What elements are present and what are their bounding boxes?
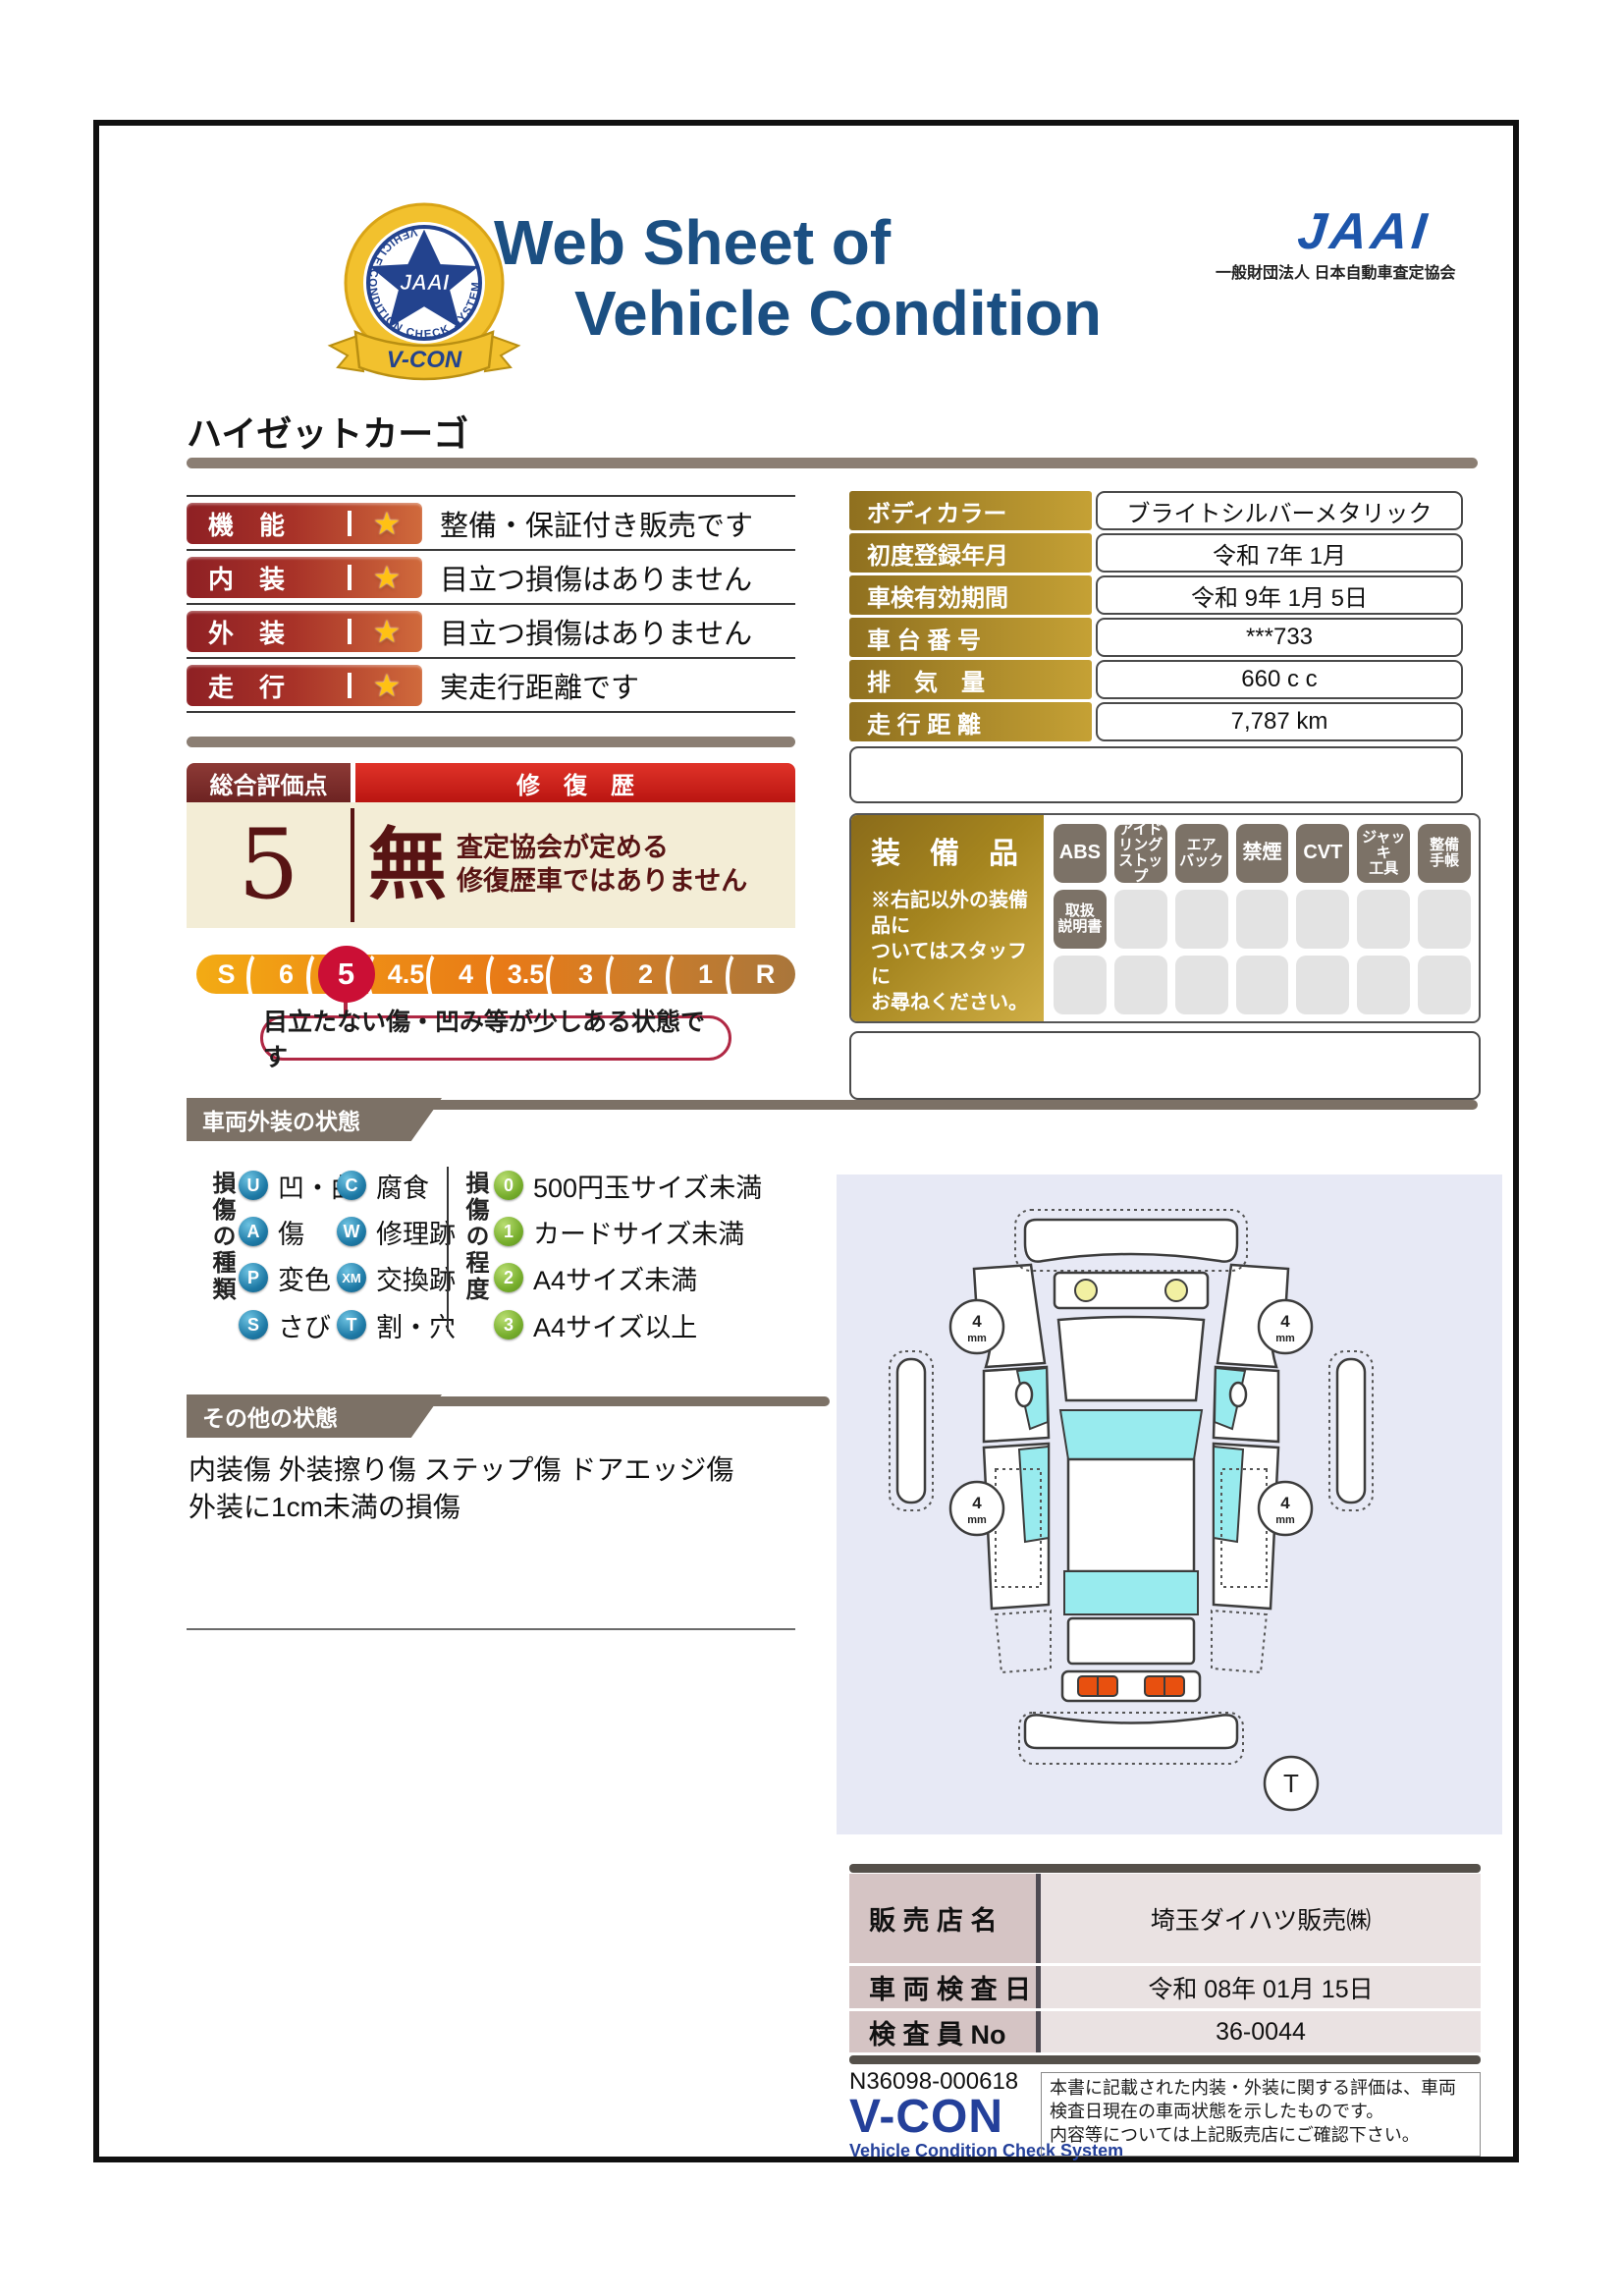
- rear-bumper: [1025, 1715, 1237, 1748]
- headlight-right: [1165, 1280, 1187, 1301]
- svg-text:4: 4: [1280, 1312, 1290, 1331]
- repair-note-line2: 修復歴車ではありません: [457, 866, 747, 896]
- star-icon: ★: [361, 613, 412, 650]
- equipment-panel: 装 備 品 ※右記以外の装備品に ついてはスタッフに お尋ねください。 ABS …: [849, 813, 1481, 1023]
- pill-separator: [348, 619, 352, 644]
- svg-text:mm: mm: [1275, 1333, 1295, 1344]
- info-label: 走 行 距 離: [849, 702, 1092, 741]
- info-value: 令和 7年 1月: [1096, 533, 1463, 573]
- rating-pill: 機 能 ★: [187, 503, 422, 544]
- equipment-badge-empty: [1357, 956, 1410, 1014]
- rating-divider: [187, 495, 795, 497]
- equipment-badge-empty: [1114, 890, 1167, 949]
- svg-text:4: 4: [972, 1312, 982, 1331]
- badge-star-text: JAAI: [400, 270, 450, 295]
- damage-type-A: A 傷: [239, 1215, 304, 1248]
- equipment-badge-empty: [1357, 890, 1410, 949]
- damage-grade-1: 1 カードサイズ未満: [494, 1215, 744, 1248]
- damage-type-icon: A: [239, 1217, 268, 1246]
- info-row-displacement: 排 気 量 660 c c: [849, 660, 1463, 699]
- dealer-label: 車 両 検 査 日: [849, 1966, 1036, 2008]
- rating-description: 目立つ損傷はありません: [440, 611, 752, 652]
- equipment-badge-empty: [1236, 890, 1289, 949]
- scale-seg-5: 5: [316, 955, 376, 994]
- dealer-label: 販 売 店 名: [849, 1874, 1036, 1963]
- windshield: [1058, 1317, 1204, 1400]
- damage-type-label: 修理跡: [376, 1213, 456, 1251]
- star-icon: ★: [361, 505, 412, 542]
- damage-grade-label: カードサイズ未満: [533, 1213, 744, 1251]
- dealer-row-inspector-no: 検 査 員 No 36-0044: [849, 2011, 1481, 2052]
- rating-pill: 内 装 ★: [187, 557, 422, 598]
- score-scale: S 6 5 4.5 4 3.5 3 2 1 R: [196, 955, 795, 994]
- rating-label: 内 装: [208, 560, 338, 596]
- damage-grade-icon: 1: [494, 1217, 523, 1246]
- rating-label: 外 装: [208, 614, 338, 650]
- info-label: 排 気 量: [849, 660, 1092, 699]
- damage-grade-label: A4サイズ以上: [533, 1306, 697, 1344]
- svg-text:mm: mm: [1275, 1514, 1295, 1526]
- car-top-view: .wh{fill:#ffffff;stroke:#3c3c3c;stroke-w…: [837, 1175, 1502, 1834]
- damage-grade-label: 500円玉サイズ未満: [533, 1167, 762, 1205]
- rating-row-interior: 内 装 ★ 目立つ損傷はありません: [187, 557, 795, 598]
- damage-type-C: C 腐食: [337, 1169, 429, 1202]
- info-label: 車 台 番 号: [849, 618, 1092, 657]
- rating-description: 目立つ損傷はありません: [440, 557, 752, 598]
- jaai-logo: JAAI: [1295, 202, 1434, 261]
- damage-grade-icon: 2: [494, 1263, 523, 1292]
- info-label: ボディカラー: [849, 491, 1092, 530]
- rating-divider: [187, 603, 795, 605]
- equipment-badge-maintenance-book: 整備 手帳: [1418, 824, 1471, 883]
- equipment-grid: ABS アイド リング ストップ エア バック 禁煙 CVT ジャッキ 工具 整…: [1044, 815, 1479, 1021]
- dealer-value: 36-0044: [1041, 2011, 1481, 2052]
- equipment-badge-airbag: エア バック: [1175, 824, 1228, 883]
- equipment-badge-cvt: CVT: [1296, 824, 1349, 883]
- rating-description: 実走行距離です: [440, 665, 639, 706]
- damage-type-W: W 修理跡: [337, 1215, 456, 1248]
- info-value: 660 c c: [1096, 660, 1463, 699]
- damage-type-T: T 割・穴: [337, 1308, 456, 1341]
- rating-label: 走 行: [208, 668, 338, 704]
- dealer-row-inspection-date: 車 両 検 査 日 令和 08年 01月 15日: [849, 1966, 1481, 2008]
- equipment-badge-owners-manual: 取扱 説明書: [1054, 890, 1107, 949]
- damage-types-title: 損傷の種類: [204, 1171, 239, 1338]
- page-title-line1: Web Sheet of: [494, 208, 1102, 279]
- equipment-badge-jack-tools: ジャッキ 工具: [1357, 824, 1410, 883]
- damage-grade-0: 0 500円玉サイズ未満: [494, 1169, 762, 1202]
- rating-divider: [187, 549, 795, 551]
- rating-description: 整備・保証付き販売です: [440, 503, 753, 544]
- info-row-mileage: 走 行 距 離 7,787 km: [849, 702, 1463, 741]
- repair-history-value: 無: [368, 826, 447, 904]
- equipment-note: ※右記以外の装備品に ついてはスタッフに お尋ねください。: [871, 888, 1044, 1015]
- damage-type-P: P 変色: [239, 1261, 331, 1294]
- equipment-badge-empty: [1114, 956, 1167, 1014]
- damage-type-icon: U: [239, 1171, 268, 1200]
- selected-score-marker: 5: [318, 946, 375, 1003]
- exterior-section-title: 車両外装の状態: [187, 1098, 442, 1141]
- page-title-line2: Vehicle Condition: [574, 279, 1102, 350]
- svg-text:4: 4: [1280, 1494, 1290, 1512]
- equipment-badge-empty: [1296, 956, 1349, 1014]
- score-body: 5 無 査定協会が定める 修復歴車ではありません: [187, 802, 795, 928]
- damage-type-icon: T: [337, 1310, 366, 1339]
- title-divider: [187, 458, 1478, 468]
- dealer-table-bottom-bar: [849, 2055, 1481, 2064]
- damage-type-icon: C: [337, 1171, 366, 1200]
- equipment-badge-idling-stop: アイド リング ストップ: [1114, 824, 1167, 883]
- repair-history-note: 査定協会が定める 修復歴車ではありません: [457, 832, 747, 899]
- damage-type-icon: P: [239, 1263, 268, 1292]
- damage-grade-label: A4サイズ未満: [533, 1259, 697, 1297]
- damage-type-label: 割・穴: [376, 1306, 456, 1344]
- dealer-label: 検 査 員 No: [849, 2011, 1036, 2052]
- equipment-title: 装 備 品: [871, 829, 1044, 872]
- damage-type-label: さび: [278, 1306, 331, 1344]
- dealer-value: 令和 08年 01月 15日: [1041, 1966, 1481, 2008]
- info-value: ブライトシルバーメタリック: [1096, 491, 1463, 530]
- legend-divider: [447, 1167, 449, 1332]
- score-header: 総合評価点 修 復 歴: [187, 763, 795, 802]
- repair-history: 無 査定協会が定める 修復歴車ではありません: [354, 802, 795, 928]
- rating-divider: [187, 657, 795, 659]
- equipment-badge-empty: [1054, 956, 1107, 1014]
- info-value: 7,787 km: [1096, 702, 1463, 741]
- badge-banner-text: V-CON: [387, 347, 462, 373]
- t-marker-label: T: [1283, 1769, 1299, 1798]
- svg-text:mm: mm: [967, 1514, 987, 1526]
- rating-divider: [187, 711, 795, 713]
- vcon-wordmark: V-CON: [849, 2090, 1003, 2144]
- dealer-value: 埼玉ダイハツ販売㈱: [1041, 1874, 1481, 1963]
- scale-seg-R: R: [735, 955, 795, 994]
- score-note-callout: 目立たない傷・凹み等が少しある状態です: [260, 1015, 731, 1061]
- dealer-table-top-bar: [849, 1864, 1481, 1873]
- pill-separator: [348, 565, 352, 590]
- star-icon: ★: [361, 667, 412, 704]
- equipment-gold-panel: 装 備 品 ※右記以外の装備品に ついてはスタッフに お尋ねください。: [851, 815, 1044, 1021]
- info-empty-box: [849, 746, 1463, 803]
- rating-label: 機 能: [208, 506, 338, 542]
- info-value: 令和 9年 1月 5日: [1096, 575, 1463, 615]
- damage-type-S: S さび: [239, 1308, 331, 1341]
- overall-score-value: 5: [187, 802, 351, 928]
- equipment-badge-empty: [1236, 956, 1289, 1014]
- info-label: 初度登録年月: [849, 533, 1092, 573]
- rating-row-exterior: 外 装 ★ 目立つ損傷はありません: [187, 611, 795, 652]
- rating-pill: 走 行 ★: [187, 665, 422, 706]
- other-section-title: その他の状態: [187, 1394, 442, 1438]
- roof-panel: [1068, 1459, 1194, 1571]
- damage-type-icon: W: [337, 1217, 366, 1246]
- info-row-body-color: ボディカラー ブライトシルバーメタリック: [849, 491, 1463, 530]
- rating-row-function: 機 能 ★ 整備・保証付き販売です: [187, 503, 795, 544]
- damage-type-label: 傷: [278, 1213, 304, 1251]
- damage-type-label: 腐食: [376, 1167, 429, 1205]
- svg-text:4: 4: [972, 1494, 982, 1512]
- vehicle-damage-diagram: .wh{fill:#ffffff;stroke:#3c3c3c;stroke-w…: [837, 1175, 1502, 1834]
- damage-grade-icon: 3: [494, 1310, 523, 1339]
- equipment-badge-empty: [1296, 890, 1349, 949]
- other-condition-text: 内装傷 外装擦り傷 ステップ傷 ドアエッジ傷 外装に1cm未満の損傷: [189, 1451, 733, 1526]
- info-row-chassis-number: 車 台 番 号 ***733: [849, 618, 1463, 657]
- info-label: 車検有効期間: [849, 575, 1092, 615]
- info-row-inspection-validity: 車検有効期間 令和 9年 1月 5日: [849, 575, 1463, 615]
- pill-separator: [348, 511, 352, 536]
- equipment-badge-empty: [1175, 890, 1228, 949]
- damage-grade-2: 2 A4サイズ未満: [494, 1261, 697, 1294]
- overall-score-header: 総合評価点: [187, 763, 351, 802]
- equipment-badge-abs: ABS: [1054, 824, 1107, 883]
- damage-type-icon: S: [239, 1310, 268, 1339]
- damage-grade-icon: 0: [494, 1171, 523, 1200]
- info-value: ***733: [1096, 618, 1463, 657]
- equipment-badge-non-smoking: 禁煙: [1236, 824, 1289, 883]
- equipment-badge-empty: [1418, 956, 1471, 1014]
- rating-pill: 外 装 ★: [187, 611, 422, 652]
- repair-note-line1: 査定協会が定める: [457, 833, 669, 862]
- rating-row-mileage: 走 行 ★ 実走行距離です: [187, 665, 795, 706]
- damage-type-XM: XM 交換跡: [337, 1261, 456, 1294]
- section-divider: [187, 737, 795, 747]
- equipment-badge-empty: [1175, 956, 1228, 1014]
- equipment-empty-box: [849, 1031, 1481, 1100]
- disclaimer-text: 本書に記載された内装・外装に関する評価は、車両 検査日現在の車両状態を示したもの…: [1041, 2072, 1481, 2157]
- damage-type-label: 変色: [278, 1259, 331, 1297]
- page-title: Web Sheet of Vehicle Condition: [494, 208, 1102, 349]
- damage-type-label: 交換跡: [376, 1259, 456, 1297]
- star-icon: ★: [361, 559, 412, 596]
- equipment-badge-empty: [1418, 890, 1471, 949]
- pill-separator: [348, 673, 352, 698]
- dealer-row-shop-name: 販 売 店 名 埼玉ダイハツ販売㈱: [849, 1874, 1481, 1963]
- vehicle-name: ハイゼットカーゴ: [187, 406, 468, 457]
- damage-type-icon: XM: [337, 1263, 366, 1292]
- damage-grades-title: 損傷の程度: [458, 1171, 492, 1338]
- repair-history-header: 修 復 歴: [355, 763, 795, 802]
- headlight-left: [1075, 1280, 1097, 1301]
- damage-grade-3: 3 A4サイズ以上: [494, 1308, 697, 1341]
- info-row-first-registration: 初度登録年月 令和 7年 1月: [849, 533, 1463, 573]
- svg-text:mm: mm: [967, 1333, 987, 1344]
- other-section-underline: [187, 1628, 795, 1630]
- jaai-subtitle: 一般財団法人 日本自動車査定協会: [1216, 259, 1455, 283]
